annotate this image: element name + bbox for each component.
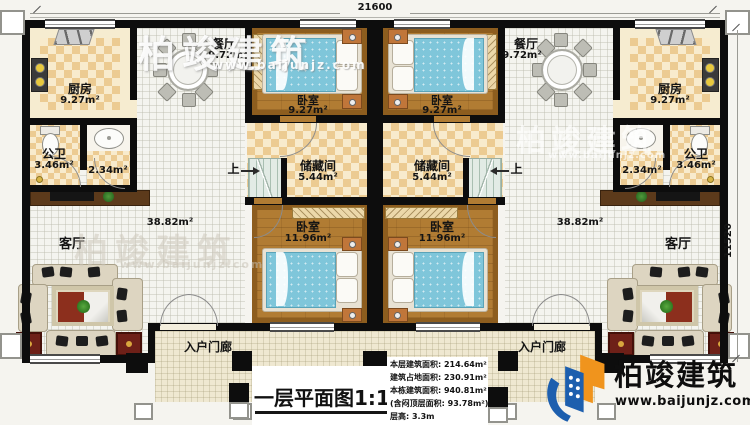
- nightstand-icon: [342, 308, 362, 322]
- pillow-icon: [641, 335, 654, 346]
- pillow-icon: [95, 335, 108, 346]
- wall: [130, 20, 137, 100]
- bathroom-label: 公卫: [670, 148, 722, 161]
- pillow-icon: [392, 66, 414, 91]
- sink-drain-icon: [107, 136, 111, 140]
- tv-icon: [656, 192, 700, 201]
- wardrobe-icon: [385, 207, 458, 219]
- wall: [498, 20, 505, 123]
- sink-drain-icon: [639, 136, 643, 140]
- porch-column: [498, 351, 518, 371]
- legend-square-white: [229, 402, 249, 419]
- rug-icon: [52, 286, 114, 326]
- blanket-fold-icon: [276, 252, 288, 306]
- plant-icon: [660, 300, 673, 313]
- pillow-icon: [336, 278, 358, 303]
- stair-up-label: 上: [226, 163, 241, 176]
- porch-column: [232, 351, 252, 371]
- sofa-icon: [607, 278, 638, 331]
- kitchen-label: 厨房: [640, 83, 700, 96]
- floor-drain-icon: [707, 176, 714, 183]
- door-opening: [434, 116, 470, 122]
- sofa-icon: [112, 278, 143, 331]
- stove-icon: [31, 58, 48, 92]
- living-area: 38.82m²: [146, 218, 194, 229]
- stats-box: 本层建筑面积: 214.64m² 建筑占地面积: 230.91m² 本栋建筑面积…: [387, 357, 488, 425]
- dining-area: 9.72m²: [202, 51, 254, 62]
- dimension-label-right: 11520: [724, 210, 740, 272]
- floorplan-canvas: 厨房 9.27m² 餐厅 9.72m² 公卫 3.46m² 2.34m² 卧室 …: [0, 0, 750, 425]
- sink-icon: [94, 128, 124, 149]
- wall: [375, 20, 383, 331]
- dining-area: 9.72m²: [496, 51, 548, 62]
- nightstand-icon: [342, 29, 362, 44]
- stats-line: 层高: 3.3m: [390, 411, 488, 424]
- window: [300, 19, 356, 29]
- pillow-icon: [662, 336, 674, 346]
- range-hood-icon: [655, 29, 696, 45]
- living-area: 38.82m²: [556, 218, 604, 229]
- legend-square-black: [488, 387, 508, 407]
- blanket-fold-icon: [462, 252, 474, 306]
- storage-area: 5.44m²: [405, 173, 459, 184]
- storage-area: 5.44m²: [291, 173, 345, 184]
- door-opening: [254, 198, 282, 204]
- pillow-icon: [650, 266, 663, 277]
- chair-icon: [153, 63, 167, 77]
- brand-url: www.baijunjz.com: [615, 394, 750, 409]
- plant-icon: [636, 191, 647, 202]
- pillow-icon: [622, 310, 633, 323]
- bedroom-bottom-label: 卧室: [278, 221, 338, 234]
- pillow-icon: [41, 266, 54, 278]
- bedroom-bottom-label: 卧室: [412, 221, 472, 234]
- kitchen-area: 9.27m²: [48, 96, 112, 107]
- storage-label: 储藏间: [401, 160, 463, 173]
- stats-line: 建筑占地面积: 230.91m²: [390, 372, 488, 385]
- floorplan-unit-left: 厨房 9.27m² 餐厅 9.72m² 公卫 3.46m² 2.34m² 卧室 …: [0, 0, 375, 425]
- brand-logo-icon: [542, 350, 616, 424]
- dining-label: 餐厅: [200, 38, 248, 51]
- chair-icon: [182, 33, 196, 47]
- pillow-icon: [88, 266, 101, 277]
- nightstand-icon: [342, 94, 362, 109]
- nightstand-icon: [388, 29, 408, 44]
- tv-icon: [50, 192, 94, 201]
- blanket-fold-icon: [276, 38, 288, 90]
- wall: [613, 118, 728, 125]
- floor-drain-icon: [36, 176, 43, 183]
- dimension-line: [737, 30, 738, 362]
- pillow-icon: [55, 335, 68, 346]
- pillow-icon: [622, 287, 634, 300]
- kitchen-area: 9.27m²: [638, 96, 702, 107]
- wardrobe-icon: [292, 207, 365, 219]
- stove-icon: [702, 58, 719, 92]
- door-opening: [613, 100, 620, 118]
- nightstand-icon: [388, 308, 408, 322]
- pillow-icon: [60, 266, 73, 277]
- burner-icon: [35, 63, 45, 73]
- bathroom-label: 公卫: [28, 148, 80, 161]
- stair-break-line: [469, 159, 501, 197]
- pillow-icon: [678, 266, 691, 277]
- wall: [130, 118, 137, 192]
- stats-line: 本栋建筑面积: 940.81m²: [390, 385, 488, 398]
- porch-column: [126, 353, 148, 373]
- dimension-line: [30, 17, 720, 18]
- dining-label: 餐厅: [502, 38, 550, 51]
- porch-label: 入户门廊: [166, 341, 250, 354]
- legend-square-black: [229, 383, 249, 402]
- living-label: 客厅: [656, 238, 700, 252]
- washroom-area: 2.34m²: [84, 166, 132, 177]
- stair-break-line: [249, 159, 281, 197]
- window: [30, 354, 100, 364]
- kitchen-label: 厨房: [50, 83, 110, 96]
- pillow-icon: [76, 336, 88, 346]
- storage-label: 储藏间: [287, 160, 349, 173]
- up-arrow-icon: [490, 167, 497, 175]
- window: [416, 322, 480, 332]
- corner-pilaster: [0, 10, 25, 35]
- column-base: [134, 403, 153, 420]
- table-ornament-icon: [126, 341, 132, 347]
- wall: [367, 20, 375, 331]
- blanket-fold-icon: [462, 38, 474, 90]
- pillow-icon: [116, 287, 128, 300]
- chair-icon: [554, 93, 568, 107]
- burner-icon: [705, 63, 715, 73]
- table-ornament-icon: [618, 341, 624, 347]
- pillow-icon: [392, 278, 414, 303]
- stats-line: 本层建筑面积: 214.64m²: [390, 359, 488, 372]
- sink-icon: [626, 128, 656, 149]
- window: [270, 322, 334, 332]
- living-label: 客厅: [50, 238, 94, 252]
- stair-up-label: 上: [509, 163, 524, 176]
- stairs-icon: [248, 158, 282, 198]
- washroom-area: 2.34m²: [618, 166, 666, 177]
- nightstand-icon: [388, 237, 408, 251]
- burner-icon: [35, 77, 45, 87]
- rug-icon: [636, 286, 698, 326]
- door-opening: [130, 100, 137, 118]
- burner-icon: [705, 77, 715, 87]
- pillow-icon: [116, 310, 127, 323]
- stairs-icon: [468, 158, 502, 198]
- nightstand-icon: [388, 94, 408, 109]
- stats-line: (含闷顶层面积: 93.78m²): [390, 398, 488, 411]
- wall: [22, 118, 137, 125]
- legend-square-white: [488, 407, 508, 423]
- wall: [245, 20, 252, 123]
- corner-pilaster: [0, 333, 22, 359]
- bedroom-top-area: 9.27m²: [280, 106, 336, 117]
- chair-icon: [583, 63, 597, 77]
- window: [635, 19, 705, 29]
- pillow-icon: [336, 252, 358, 277]
- bedroom-bottom-area: 11.96m²: [410, 234, 474, 245]
- pillow-icon: [336, 66, 358, 91]
- wall: [613, 118, 620, 192]
- bathroom-area: 3.46m²: [668, 161, 724, 172]
- window: [45, 19, 115, 29]
- plant-icon: [103, 191, 114, 202]
- pillow-icon: [392, 252, 414, 277]
- plant-icon: [77, 300, 90, 313]
- wall: [613, 20, 620, 100]
- door-opening: [280, 116, 316, 122]
- nightstand-icon: [342, 237, 362, 251]
- title-underline: [255, 411, 407, 414]
- chair-icon: [182, 93, 196, 107]
- bedroom-top-area: 9.27m²: [414, 106, 470, 117]
- range-hood-icon: [53, 29, 94, 45]
- up-arrow-icon: [253, 167, 260, 175]
- pillow-icon: [695, 266, 708, 278]
- window: [394, 19, 450, 29]
- door-opening: [468, 198, 496, 204]
- pillow-icon: [681, 335, 694, 346]
- bathroom-area: 3.46m²: [26, 161, 82, 172]
- up-arrow-line: [496, 170, 509, 172]
- chair-icon: [554, 33, 568, 47]
- bedroom-bottom-area: 11.96m²: [276, 234, 340, 245]
- dimension-label-top: 21600: [340, 3, 410, 14]
- brand-name: 柏竣建筑: [614, 352, 750, 394]
